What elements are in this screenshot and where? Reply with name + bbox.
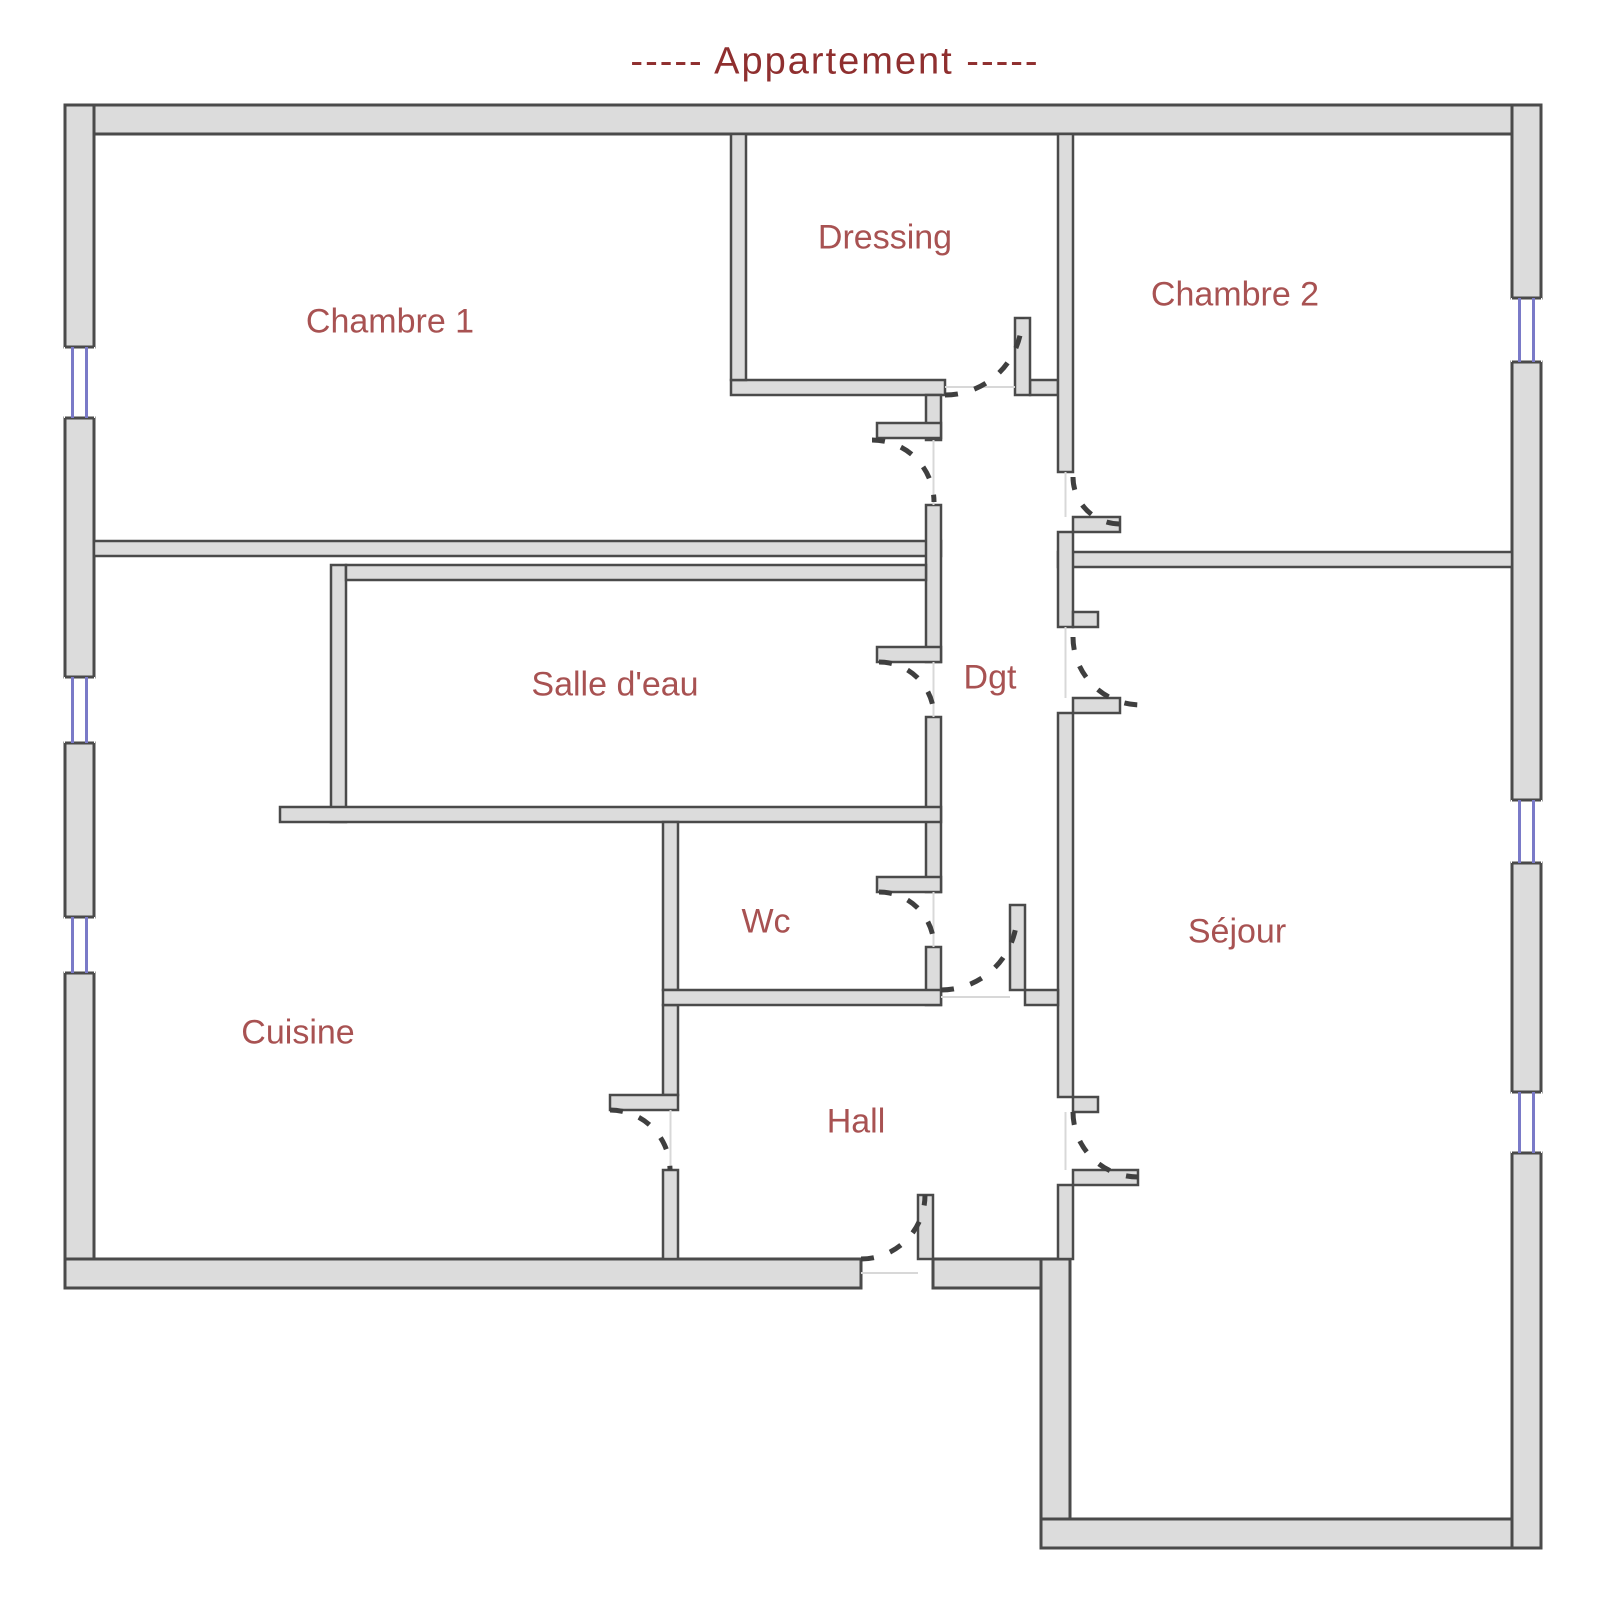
room-label-hall: Hall <box>827 1103 886 1142</box>
door-leaves <box>918 318 1138 1259</box>
door-leaf <box>1073 698 1120 713</box>
room-label-sejour: Séjour <box>1188 913 1286 952</box>
room-label-dressing: Dressing <box>818 219 952 258</box>
window-icon <box>1511 298 1542 362</box>
door-arc-entry <box>861 1195 925 1259</box>
window-icon <box>1511 1092 1542 1153</box>
room-label-chambre-1: Chambre 1 <box>306 303 474 342</box>
door-arc-hall-dgt <box>941 914 1017 990</box>
outer-walls <box>65 105 1541 1548</box>
room-label-wc: Wc <box>741 903 790 942</box>
door-arc-chambre1 <box>872 440 934 502</box>
floor-plan: ----- Appartement ----- Chambre 1 Dressi… <box>0 0 1600 1600</box>
window-icon <box>64 347 95 418</box>
room-label-dgt: Dgt <box>964 659 1017 698</box>
door-arc-wc <box>879 892 934 947</box>
room-label-salle-d-eau: Salle d'eau <box>531 666 698 705</box>
door-arc-salle-d-eau <box>879 662 934 717</box>
door-arc-cuisine <box>610 1110 670 1170</box>
plan-title: ----- Appartement ----- <box>630 41 1039 84</box>
door-leaf <box>1010 905 1025 990</box>
door-arc-dressing <box>945 318 1022 395</box>
window-icon <box>1511 800 1542 863</box>
window-icon <box>64 677 95 743</box>
door-arc-hall-sejour <box>1073 1112 1138 1177</box>
floor-plan-drawing <box>0 0 1600 1600</box>
door-leaf <box>1015 318 1030 395</box>
door-arc-sejour-dgt <box>1073 637 1141 705</box>
room-label-cuisine: Cuisine <box>241 1014 354 1053</box>
window-icon <box>64 917 95 973</box>
room-label-chambre-2: Chambre 2 <box>1151 276 1319 315</box>
